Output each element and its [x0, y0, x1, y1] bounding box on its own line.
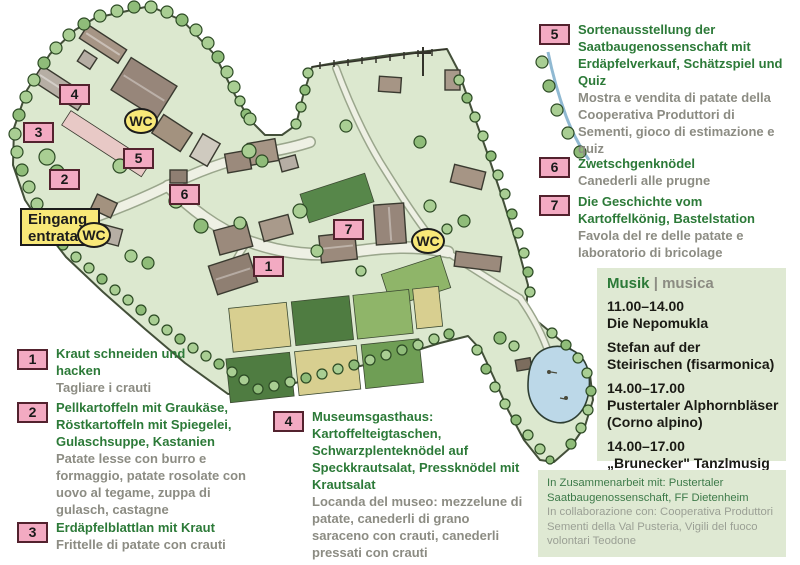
music-entry-time: 14.00–17.00 [607, 438, 779, 455]
legend-item-7-de: Die Geschichte vom Kartoffelkönig, Baste… [578, 193, 796, 227]
legend-item-6: Zwetschgenknödel Canederli alle prugne [578, 155, 793, 189]
map-marker-5: 5 [123, 148, 154, 169]
legend-marker-2: 2 [17, 402, 48, 423]
legend-item-1-it: Tagliare i crauti [56, 379, 186, 396]
map-marker-7: 7 [333, 219, 364, 240]
music-entry: Stefan auf der Steirischen (fisarmonica) [607, 339, 779, 373]
partners-it: In collaborazione con: Cooperativa Produ… [547, 505, 777, 549]
legend-item-3-de: Erdäpfelblattlan mit Kraut [56, 519, 286, 536]
partners-de: In Zusammenarbeit mit: Pustertaler Saatb… [547, 476, 777, 505]
legend-item-7-it: Favola del re delle patate e laboratorio… [578, 227, 796, 261]
partners-panel: In Zusammenarbeit mit: Pustertaler Saatb… [538, 470, 786, 557]
legend-item-5-de: Sortenausstellung der Saatbaugenossensch… [578, 21, 788, 89]
legend-marker-4: 4 [273, 411, 304, 432]
legend-marker-7: 7 [539, 195, 570, 216]
legend-marker-3: 3 [17, 522, 48, 543]
legend-item-5-it: Mostra e vendita di patate della Coopera… [578, 89, 788, 157]
map-marker-3: 3 [23, 122, 54, 143]
map-marker-4: 4 [59, 84, 90, 105]
legend-marker-1: 1 [17, 349, 48, 370]
music-entry-time: 14.00–17.00 [607, 380, 779, 397]
legend-item-7: Die Geschichte vom Kartoffelkönig, Baste… [578, 193, 796, 261]
music-entry: 11.00–14.00 Die Nepomukla [607, 298, 779, 332]
music-entry-name: Die Nepomukla [607, 315, 779, 332]
wc-marker-entrance: WC [77, 222, 111, 248]
music-entry: 14.00–17.00 „Brunecker" Tanzlmusig [607, 438, 779, 472]
music-program-panel: Musik | musica 11.00–14.00 Die Nepomukla… [597, 268, 786, 461]
legend-item-2-it: Patate lesse con burro e formaggio, pata… [56, 450, 259, 518]
music-entry-time: 11.00–14.00 [607, 298, 779, 315]
legend-marker-6: 6 [539, 157, 570, 178]
legend-item-2: Pellkartoffeln mit Graukäse, Röstkartoff… [56, 399, 259, 518]
legend-item-1: Kraut schneiden und hacken Tagliare i cr… [56, 345, 186, 396]
wc-marker-north: WC [124, 108, 158, 134]
map-marker-1: 1 [253, 256, 284, 277]
legend-item-3-it: Frittelle di patate con crauti [56, 536, 286, 553]
legend-item-6-it: Canederli alle prugne [578, 172, 793, 189]
legend-item-4-it: Locanda del museo: mezzelune di patate, … [312, 493, 530, 561]
legend-item-4: Museumsgasthaus: Kartoffelteigtaschen, S… [312, 408, 530, 561]
music-panel-title: Musik | musica [607, 275, 776, 292]
music-entry-name: Stefan auf der Steirischen (fisarmonica) [607, 339, 779, 373]
music-title-separator: | [654, 275, 658, 292]
music-entry: 14.00–17.00 Pustertaler Alphornbläser (C… [607, 380, 779, 431]
legend-item-2-de: Pellkartoffeln mit Graukäse, Röstkartoff… [56, 399, 259, 450]
legend-item-6-de: Zwetschgenknödel [578, 155, 793, 172]
legend-item-5: Sortenausstellung der Saatbaugenossensch… [578, 21, 788, 157]
map-marker-2: 2 [49, 169, 80, 190]
wc-marker-east: WC [411, 228, 445, 254]
legend-item-4-de: Museumsgasthaus: Kartoffelteigtaschen, S… [312, 408, 530, 493]
map-marker-6: 6 [169, 184, 200, 205]
music-title-de: Musik [607, 275, 650, 292]
music-title-it: musica [662, 275, 714, 292]
legend-item-3: Erdäpfelblattlan mit Kraut Frittelle di … [56, 519, 286, 553]
event-map-flyer: { "colors": { "marker_pink": "#f3aac2", … [0, 0, 800, 565]
legend-marker-5: 5 [539, 24, 570, 45]
music-entry-name: Pustertaler Alphornbläser (Corno alpino) [607, 397, 779, 431]
legend-item-1-de: Kraut schneiden und hacken [56, 345, 186, 379]
